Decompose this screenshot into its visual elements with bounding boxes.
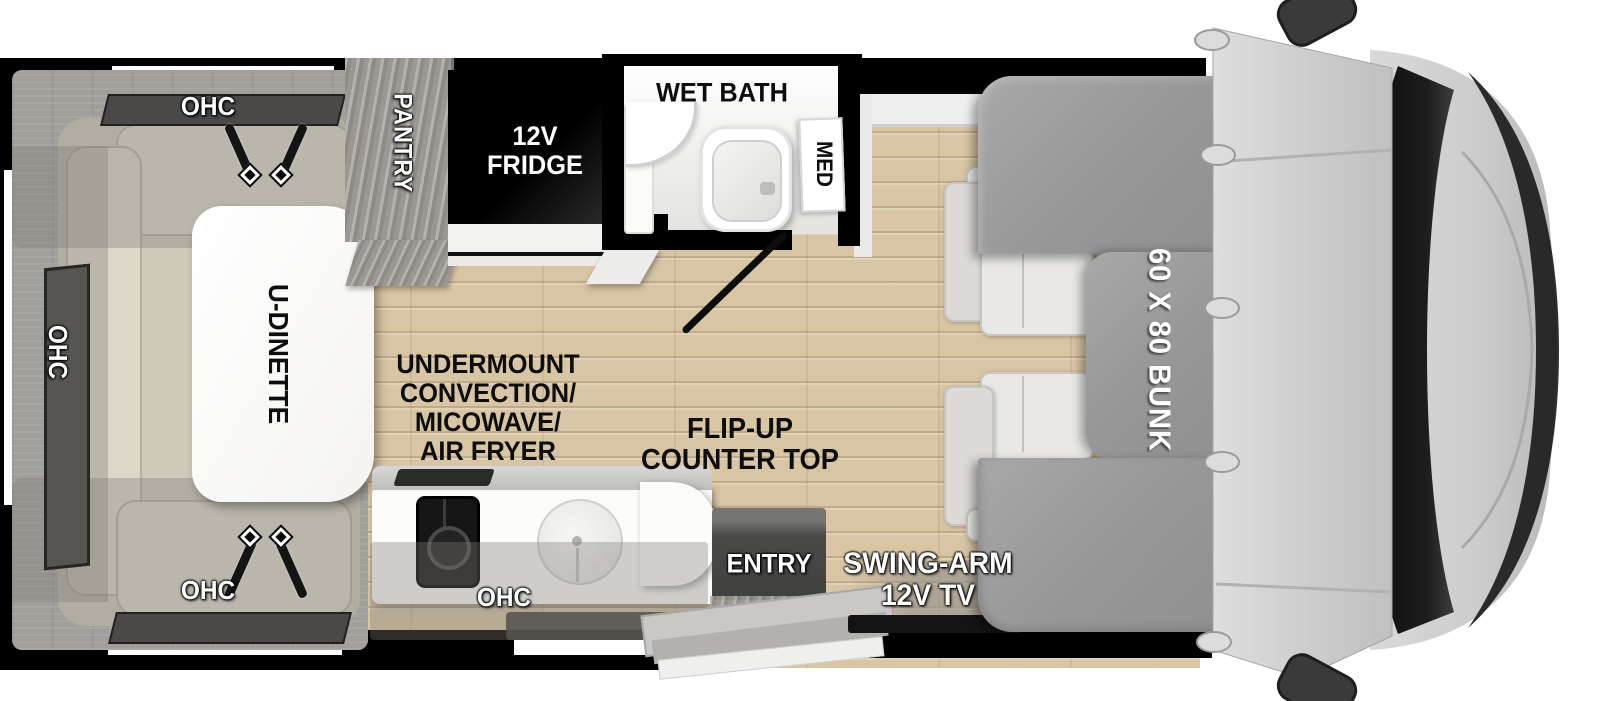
- rivet: [1205, 298, 1239, 318]
- u-dinette-label: U-DINETTE: [264, 284, 292, 424]
- side-mirror-top: [1273, 0, 1361, 51]
- rivet: [1197, 632, 1231, 652]
- ohc-label-left: OHC: [45, 325, 71, 379]
- ohc-label-bottom: OHC: [181, 577, 235, 603]
- rivet: [1201, 145, 1235, 165]
- cab-front: [1150, 0, 1600, 701]
- flip-up-label: FLIP-UP COUNTER TOP: [615, 414, 865, 476]
- ohc-left-cabinet: [44, 264, 90, 571]
- rivet: [1205, 452, 1239, 472]
- ohc-label-kitchen: OHC: [477, 584, 531, 610]
- toilet-flush: [760, 182, 775, 195]
- fridge-counter-ledge: [448, 224, 618, 256]
- cab-roof-panel: [1213, 28, 1392, 678]
- med-label: MED: [813, 141, 835, 187]
- driver-seat-cushion: [980, 372, 1094, 460]
- driver-seat-seam: [1022, 376, 1024, 452]
- wet-bath-label: WET BATH: [656, 80, 788, 107]
- passenger-seat-cushion: [980, 248, 1094, 336]
- bottom-window-kitchen: [514, 640, 650, 655]
- swing-arm-tv-label: SWING-ARM 12V TV: [808, 548, 1048, 612]
- entry-label: ENTRY: [726, 551, 811, 578]
- appliance-label: UNDERMOUNT CONVECTION/ MICOWAVE/ AIR FRY…: [358, 350, 618, 466]
- counter-vent: [393, 469, 495, 486]
- pantry-cabinet-foot: [345, 240, 460, 286]
- cooktop-divider: [443, 499, 446, 527]
- fridge-label: 12V FRIDGE: [470, 122, 600, 180]
- toilet-seat: [712, 140, 782, 222]
- pantry-label: PANTRY: [390, 93, 415, 193]
- rivet: [1195, 30, 1229, 50]
- rv-floorplan-diagram: U-DINETTE OHC OHC OHC PANTRY 12V FRIDGE …: [0, 0, 1600, 701]
- ohc-bottom-cabinet: [108, 612, 352, 644]
- ohc-label-top: OHC: [181, 93, 235, 119]
- passenger-seat-seam: [1022, 252, 1024, 328]
